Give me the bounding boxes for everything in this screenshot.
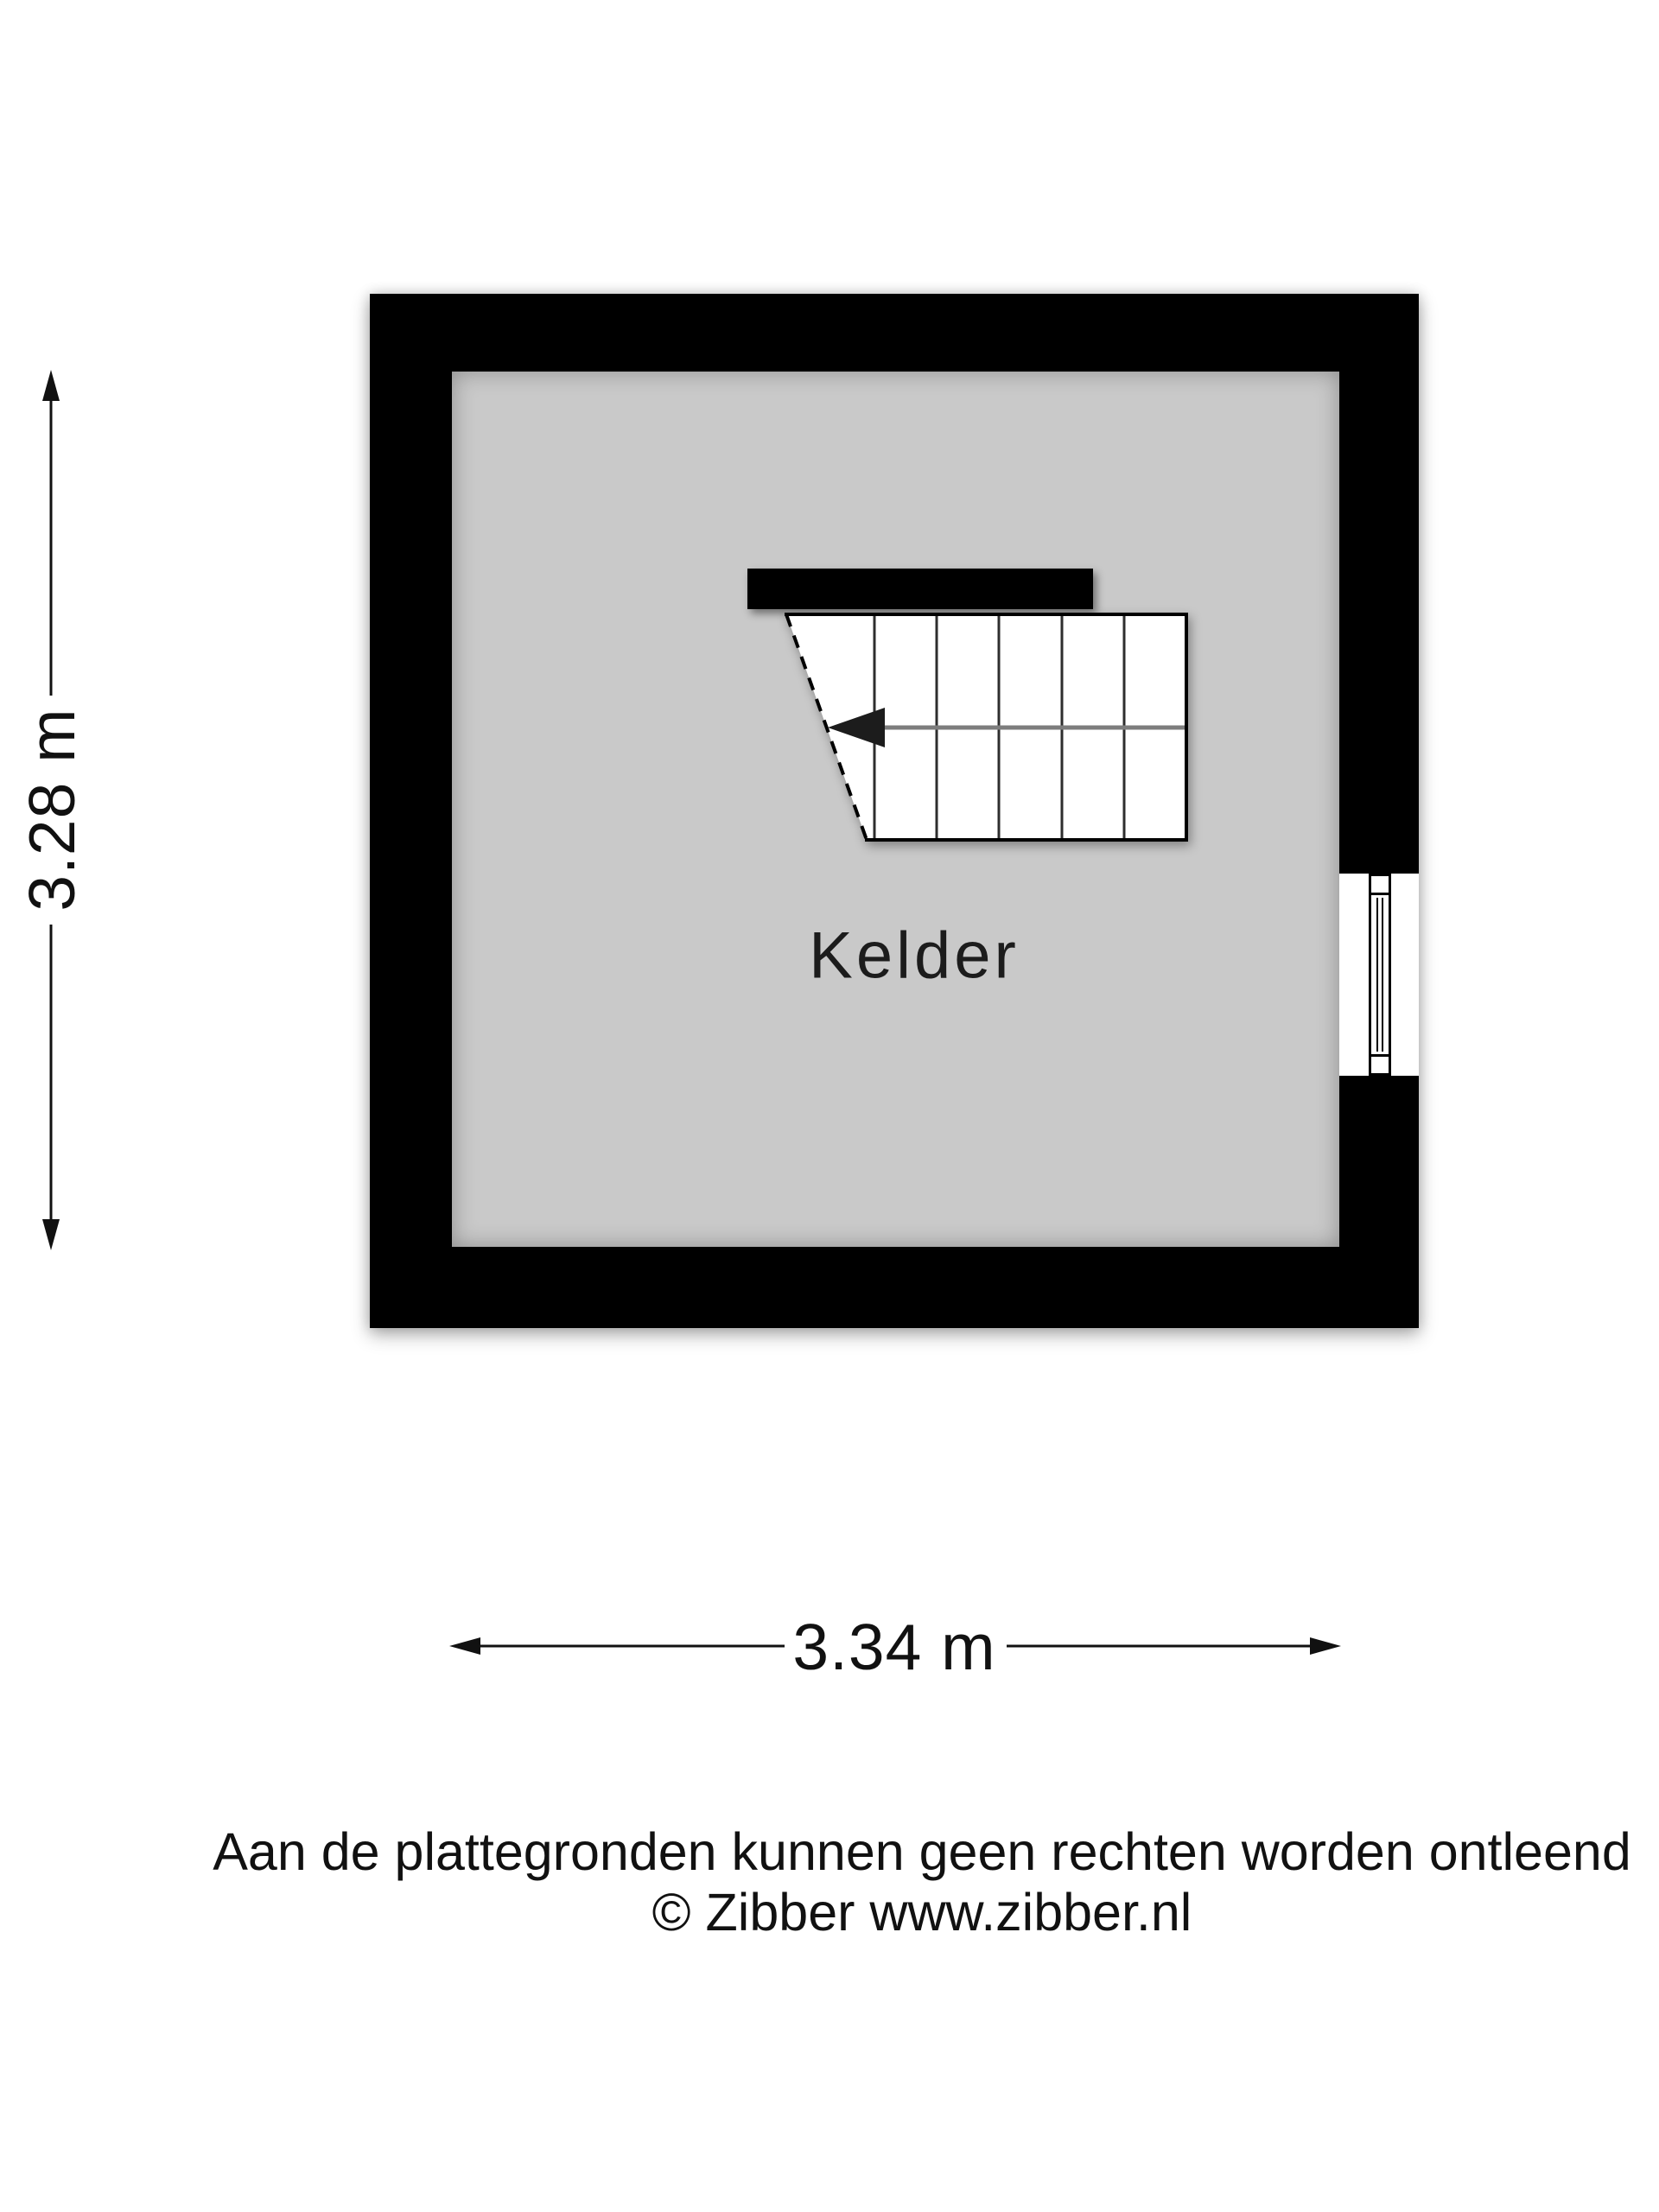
window	[1339, 874, 1419, 1076]
disclaimer: Aan de plattegronden kunnen geen rechten…	[186, 1821, 1658, 1942]
staircase	[743, 605, 1192, 847]
width-dimension-label: 3.34 m	[792, 1610, 995, 1684]
window-glass-line	[1382, 898, 1383, 1052]
height-dimension-label: 3.28 m	[15, 708, 89, 911]
floorplan-page: Kelder 3.28 m 3.34 m Aan de plattegronde…	[0, 0, 1659, 2212]
disclaimer-line-2: © Zibber www.zibber.nl	[186, 1882, 1658, 1942]
window-glass-line	[1376, 898, 1378, 1052]
window-frame	[1369, 874, 1391, 1076]
window-cap-bottom	[1371, 1054, 1389, 1057]
window-cap-top	[1371, 893, 1389, 895]
stair-landing-wall	[747, 569, 1093, 609]
disclaimer-line-1: Aan de plattegronden kunnen geen rechten…	[186, 1821, 1658, 1882]
room-label: Kelder	[809, 918, 1020, 994]
